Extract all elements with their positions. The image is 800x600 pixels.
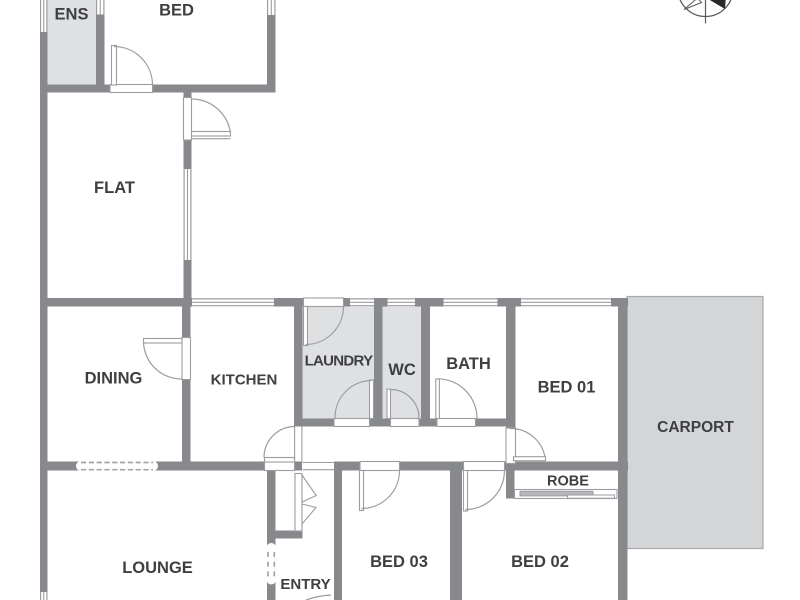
svg-text:CARPORT: CARPORT [657, 419, 734, 436]
svg-text:LOUNGE: LOUNGE [122, 559, 193, 577]
svg-text:KITCHEN: KITCHEN [211, 372, 278, 389]
svg-text:BED 03: BED 03 [370, 553, 428, 571]
svg-text:LAUNDRY: LAUNDRY [305, 353, 374, 370]
svg-text:BED 01: BED 01 [538, 379, 596, 397]
svg-text:BED: BED [159, 2, 194, 20]
svg-text:BATH: BATH [446, 355, 491, 373]
svg-text:ENTRY: ENTRY [280, 576, 330, 593]
svg-text:FLAT: FLAT [94, 179, 135, 197]
svg-text:BED 02: BED 02 [511, 553, 569, 571]
svg-text:ENS: ENS [55, 6, 89, 24]
svg-text:DINING: DINING [85, 370, 143, 388]
svg-text:ROBE: ROBE [547, 474, 589, 490]
svg-text:WC: WC [388, 361, 416, 379]
